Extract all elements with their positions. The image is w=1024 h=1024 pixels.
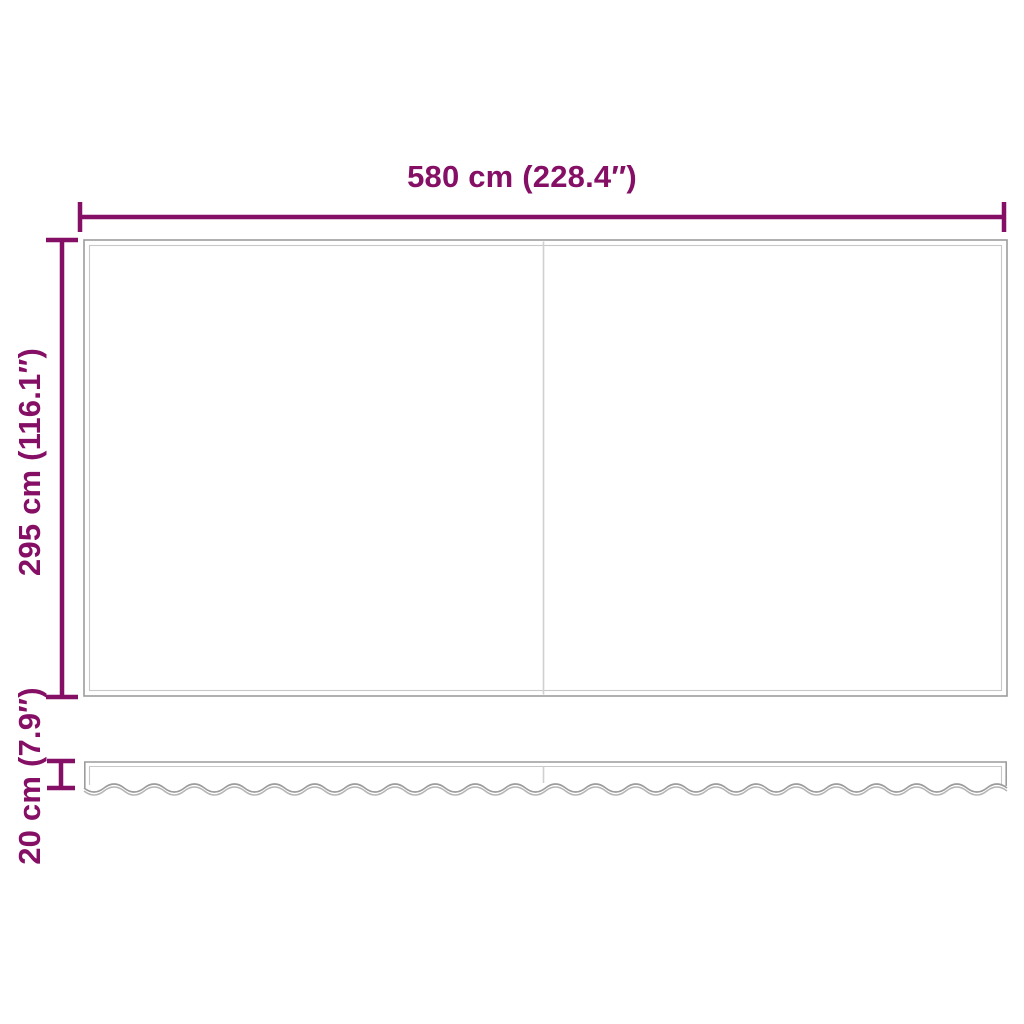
awning-fabric-panel xyxy=(84,240,1007,696)
diagram-linework xyxy=(0,0,1024,1024)
width-dimension-label: 580 cm (228.4″) xyxy=(407,159,637,195)
height-dimension xyxy=(46,240,78,697)
valance-strip xyxy=(84,762,1007,795)
product-dimension-diagram: 580 cm (228.4″) 295 cm (116.1″) 20 cm (7… xyxy=(0,0,1024,1024)
height-dimension-label: 295 cm (116.1″) xyxy=(12,348,48,576)
width-dimension xyxy=(80,202,1004,232)
valance-height-dimension-label: 20 cm (7.9″) xyxy=(12,687,48,865)
valance-height-dimension xyxy=(47,761,75,788)
fabric-panel-outline xyxy=(84,240,1007,696)
